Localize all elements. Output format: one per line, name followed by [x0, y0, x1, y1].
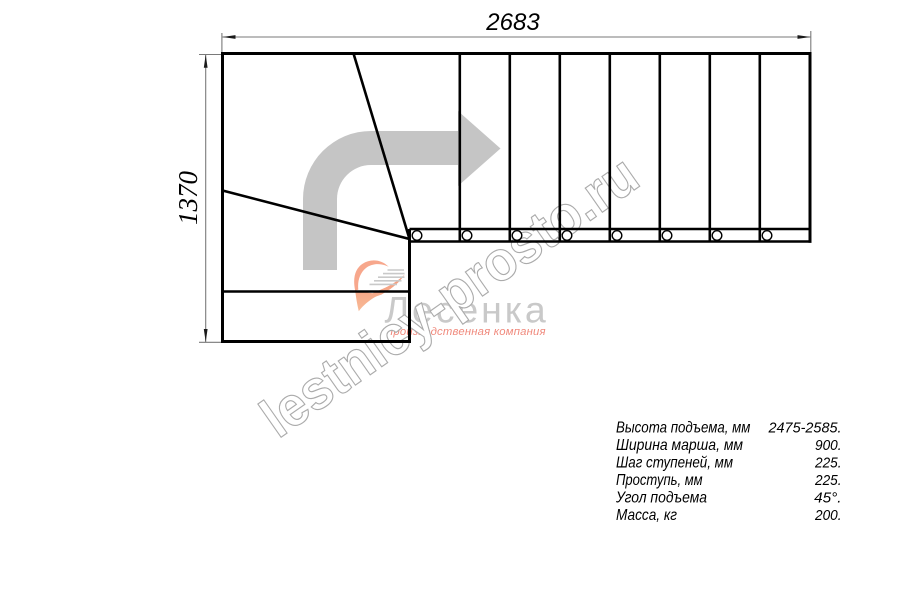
svg-text:Ширина марша, мм: Ширина марша, мм	[616, 437, 743, 454]
svg-text:900.: 900.	[815, 438, 842, 454]
svg-text:2683: 2683	[485, 9, 540, 36]
svg-text:Проступь, мм: Проступь, мм	[616, 472, 703, 489]
svg-text:Масса, кг: Масса, кг	[616, 507, 677, 524]
svg-text:Шаг ступеней, мм: Шаг ступеней, мм	[616, 455, 733, 472]
svg-text:225.: 225.	[814, 473, 841, 489]
svg-text:225.: 225.	[814, 456, 841, 472]
svg-text:45°.: 45°.	[814, 491, 841, 507]
svg-text:2475-2585.: 2475-2585.	[768, 421, 842, 437]
svg-text:Угол подъема: Угол подъема	[615, 490, 707, 507]
svg-text:1370: 1370	[173, 171, 203, 226]
svg-text:Высота подъема, мм: Высота подъема, мм	[616, 420, 750, 437]
svg-text:200.: 200.	[814, 508, 841, 524]
